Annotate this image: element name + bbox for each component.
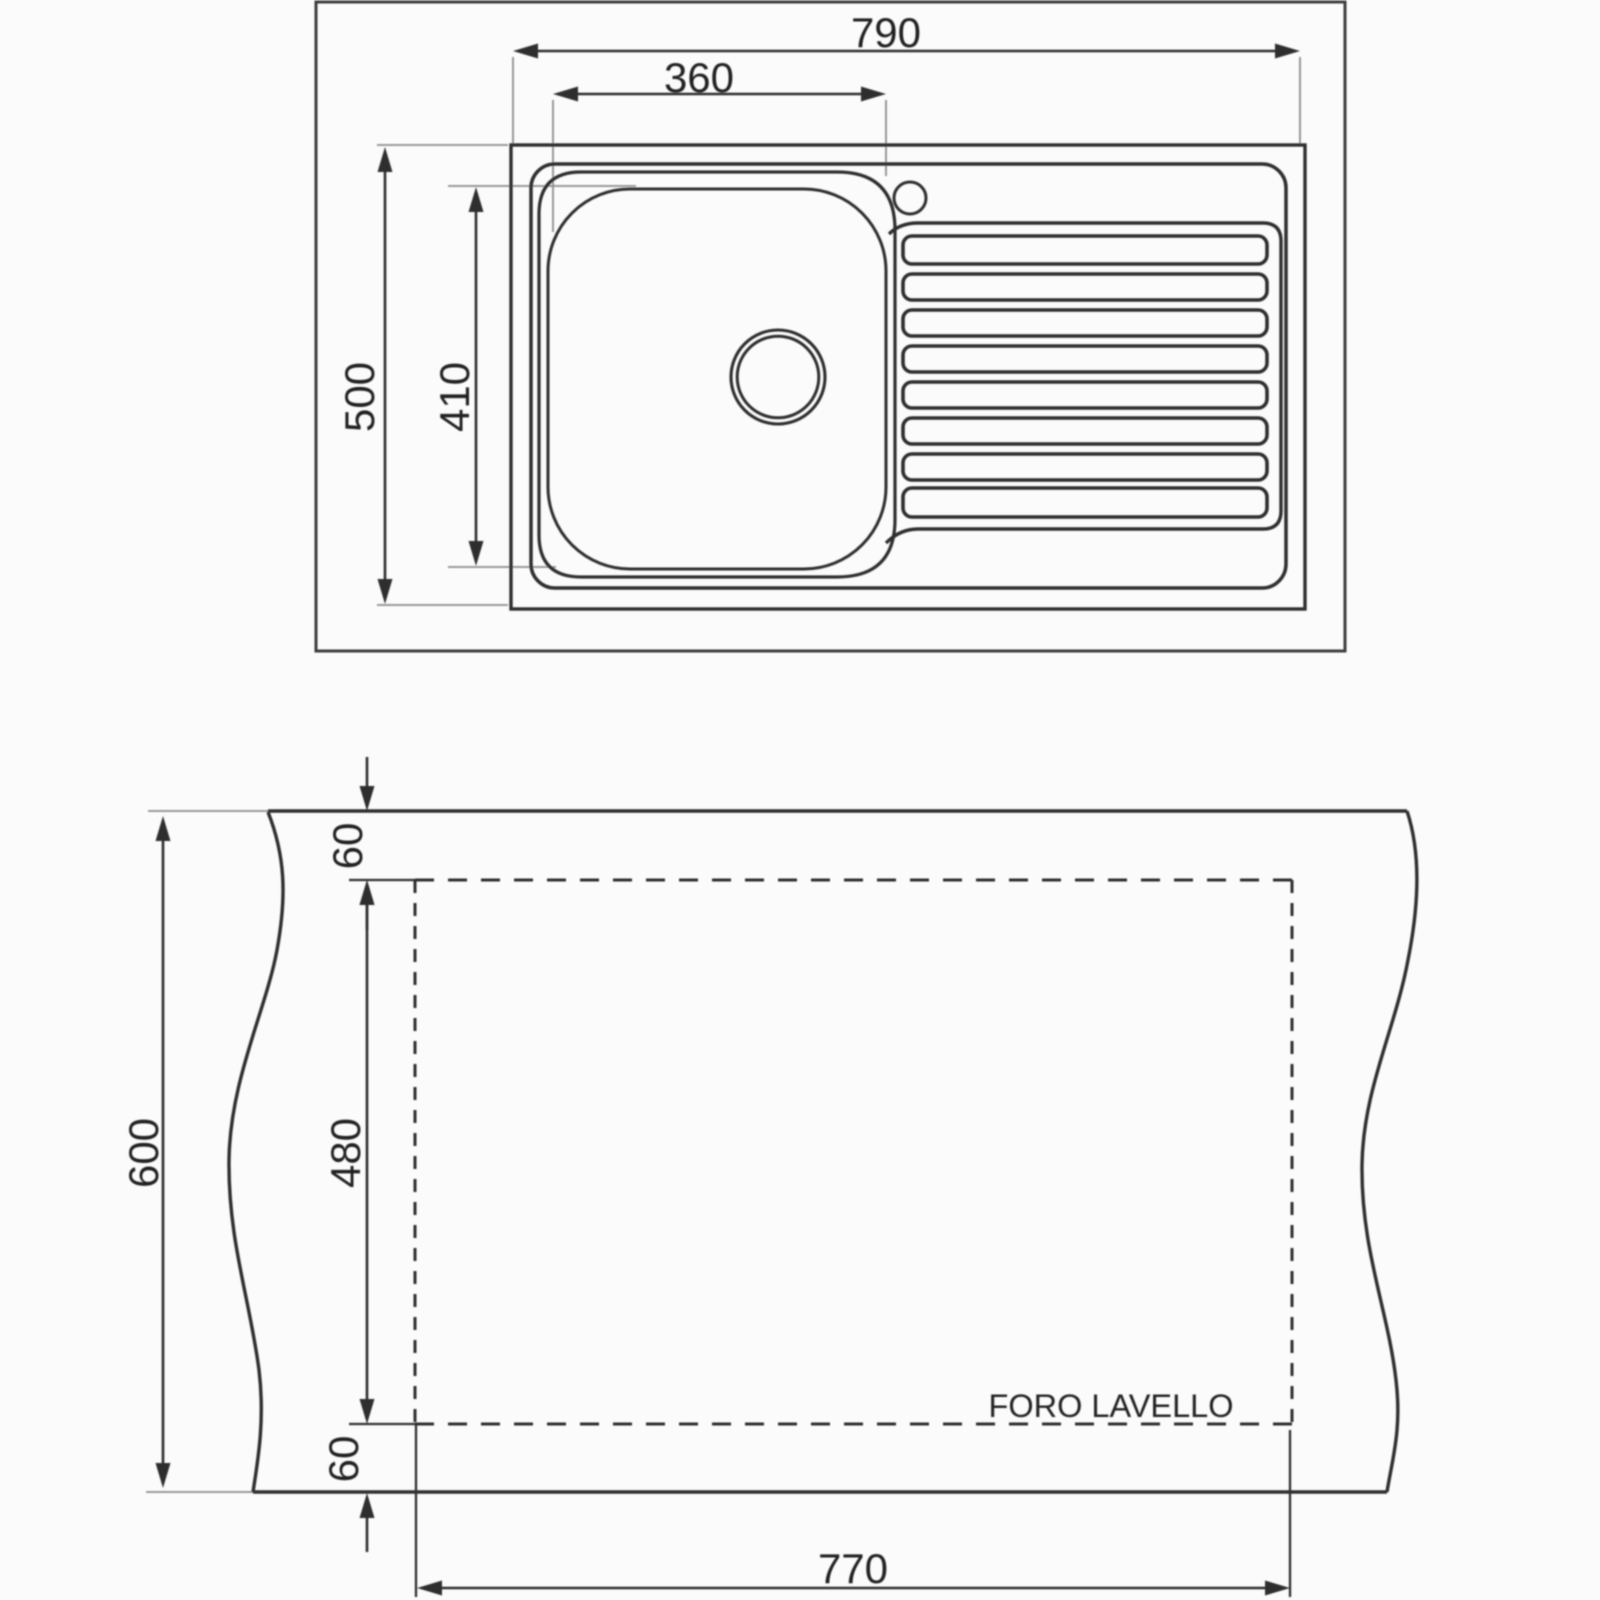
svg-text:360: 360 [664, 54, 734, 101]
svg-text:FORO LAVELLO: FORO LAVELLO [988, 1388, 1233, 1424]
svg-text:600: 600 [120, 1118, 167, 1188]
svg-text:410: 410 [431, 362, 478, 432]
svg-text:500: 500 [336, 362, 383, 432]
svg-text:60: 60 [324, 823, 371, 870]
svg-text:480: 480 [322, 1118, 369, 1188]
svg-text:770: 770 [818, 1545, 888, 1592]
svg-text:790: 790 [851, 9, 921, 56]
svg-text:60: 60 [320, 1436, 367, 1483]
